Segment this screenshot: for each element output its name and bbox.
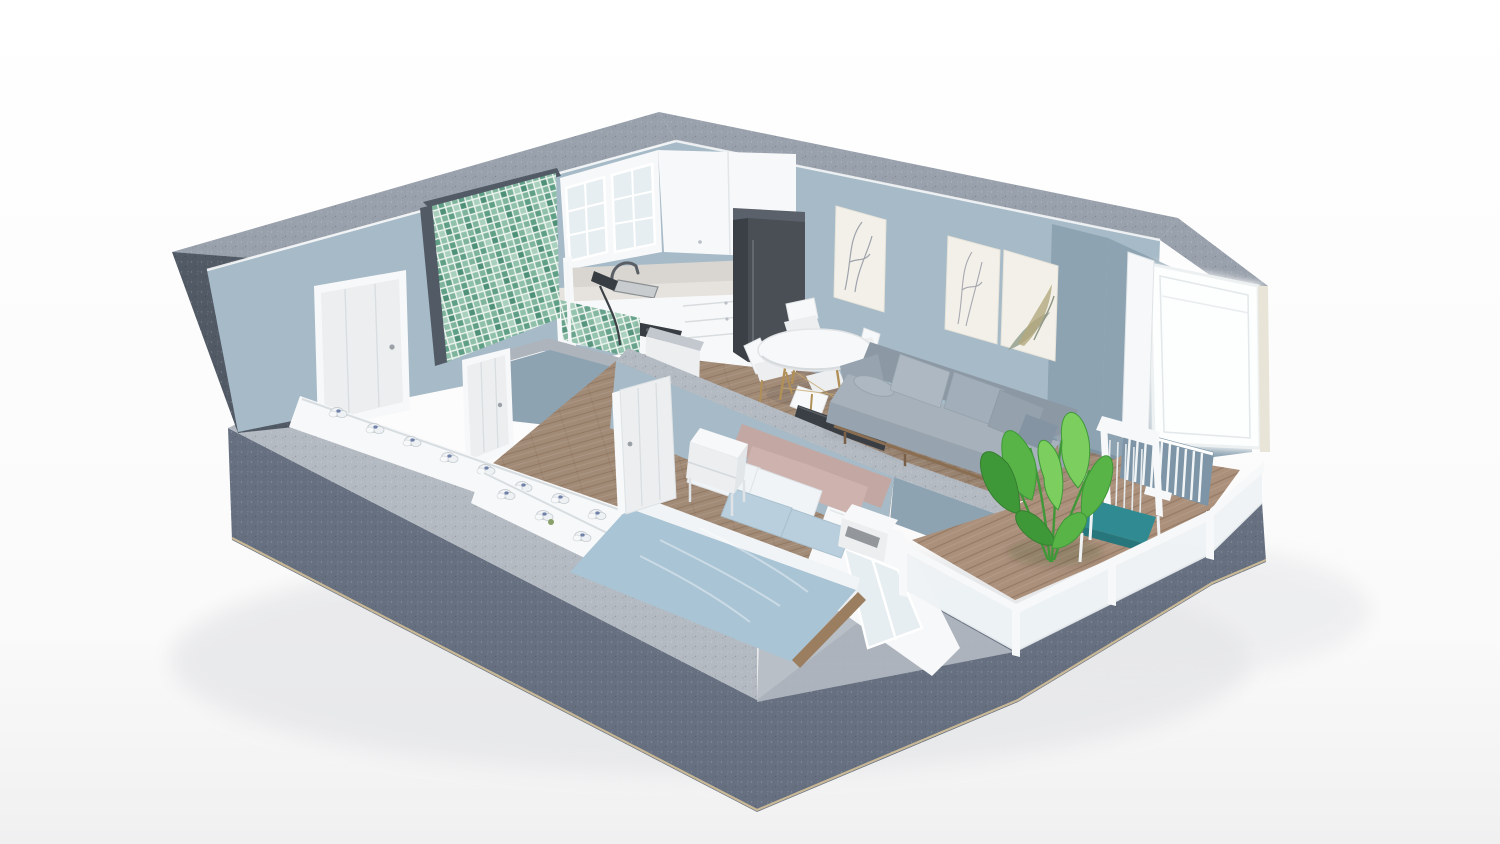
floorplan-render bbox=[0, 0, 1500, 844]
bathroom-door bbox=[467, 355, 509, 459]
drawer-knob bbox=[725, 317, 728, 320]
railing-post bbox=[1012, 606, 1020, 657]
bedroom-door bbox=[612, 376, 676, 516]
door-knob bbox=[628, 442, 633, 447]
plant-sprig bbox=[548, 519, 554, 525]
railing-post bbox=[899, 546, 907, 597]
balcony-glass-door bbox=[1150, 264, 1260, 448]
fridge-side bbox=[733, 218, 748, 362]
bathroom-door-knob bbox=[498, 403, 502, 407]
scene-canvas bbox=[0, 0, 1500, 844]
railing-post bbox=[1206, 511, 1214, 560]
railing-post bbox=[1108, 558, 1116, 606]
door-knob bbox=[389, 344, 394, 349]
entrance-door bbox=[321, 279, 403, 421]
cabinet-knob bbox=[698, 240, 702, 244]
art-panel-left bbox=[945, 236, 1000, 344]
open-door-leaf bbox=[1122, 252, 1154, 448]
drawer-knob bbox=[724, 301, 727, 304]
art-panel-right bbox=[1001, 250, 1058, 361]
wall-cut-edge bbox=[1258, 286, 1270, 452]
